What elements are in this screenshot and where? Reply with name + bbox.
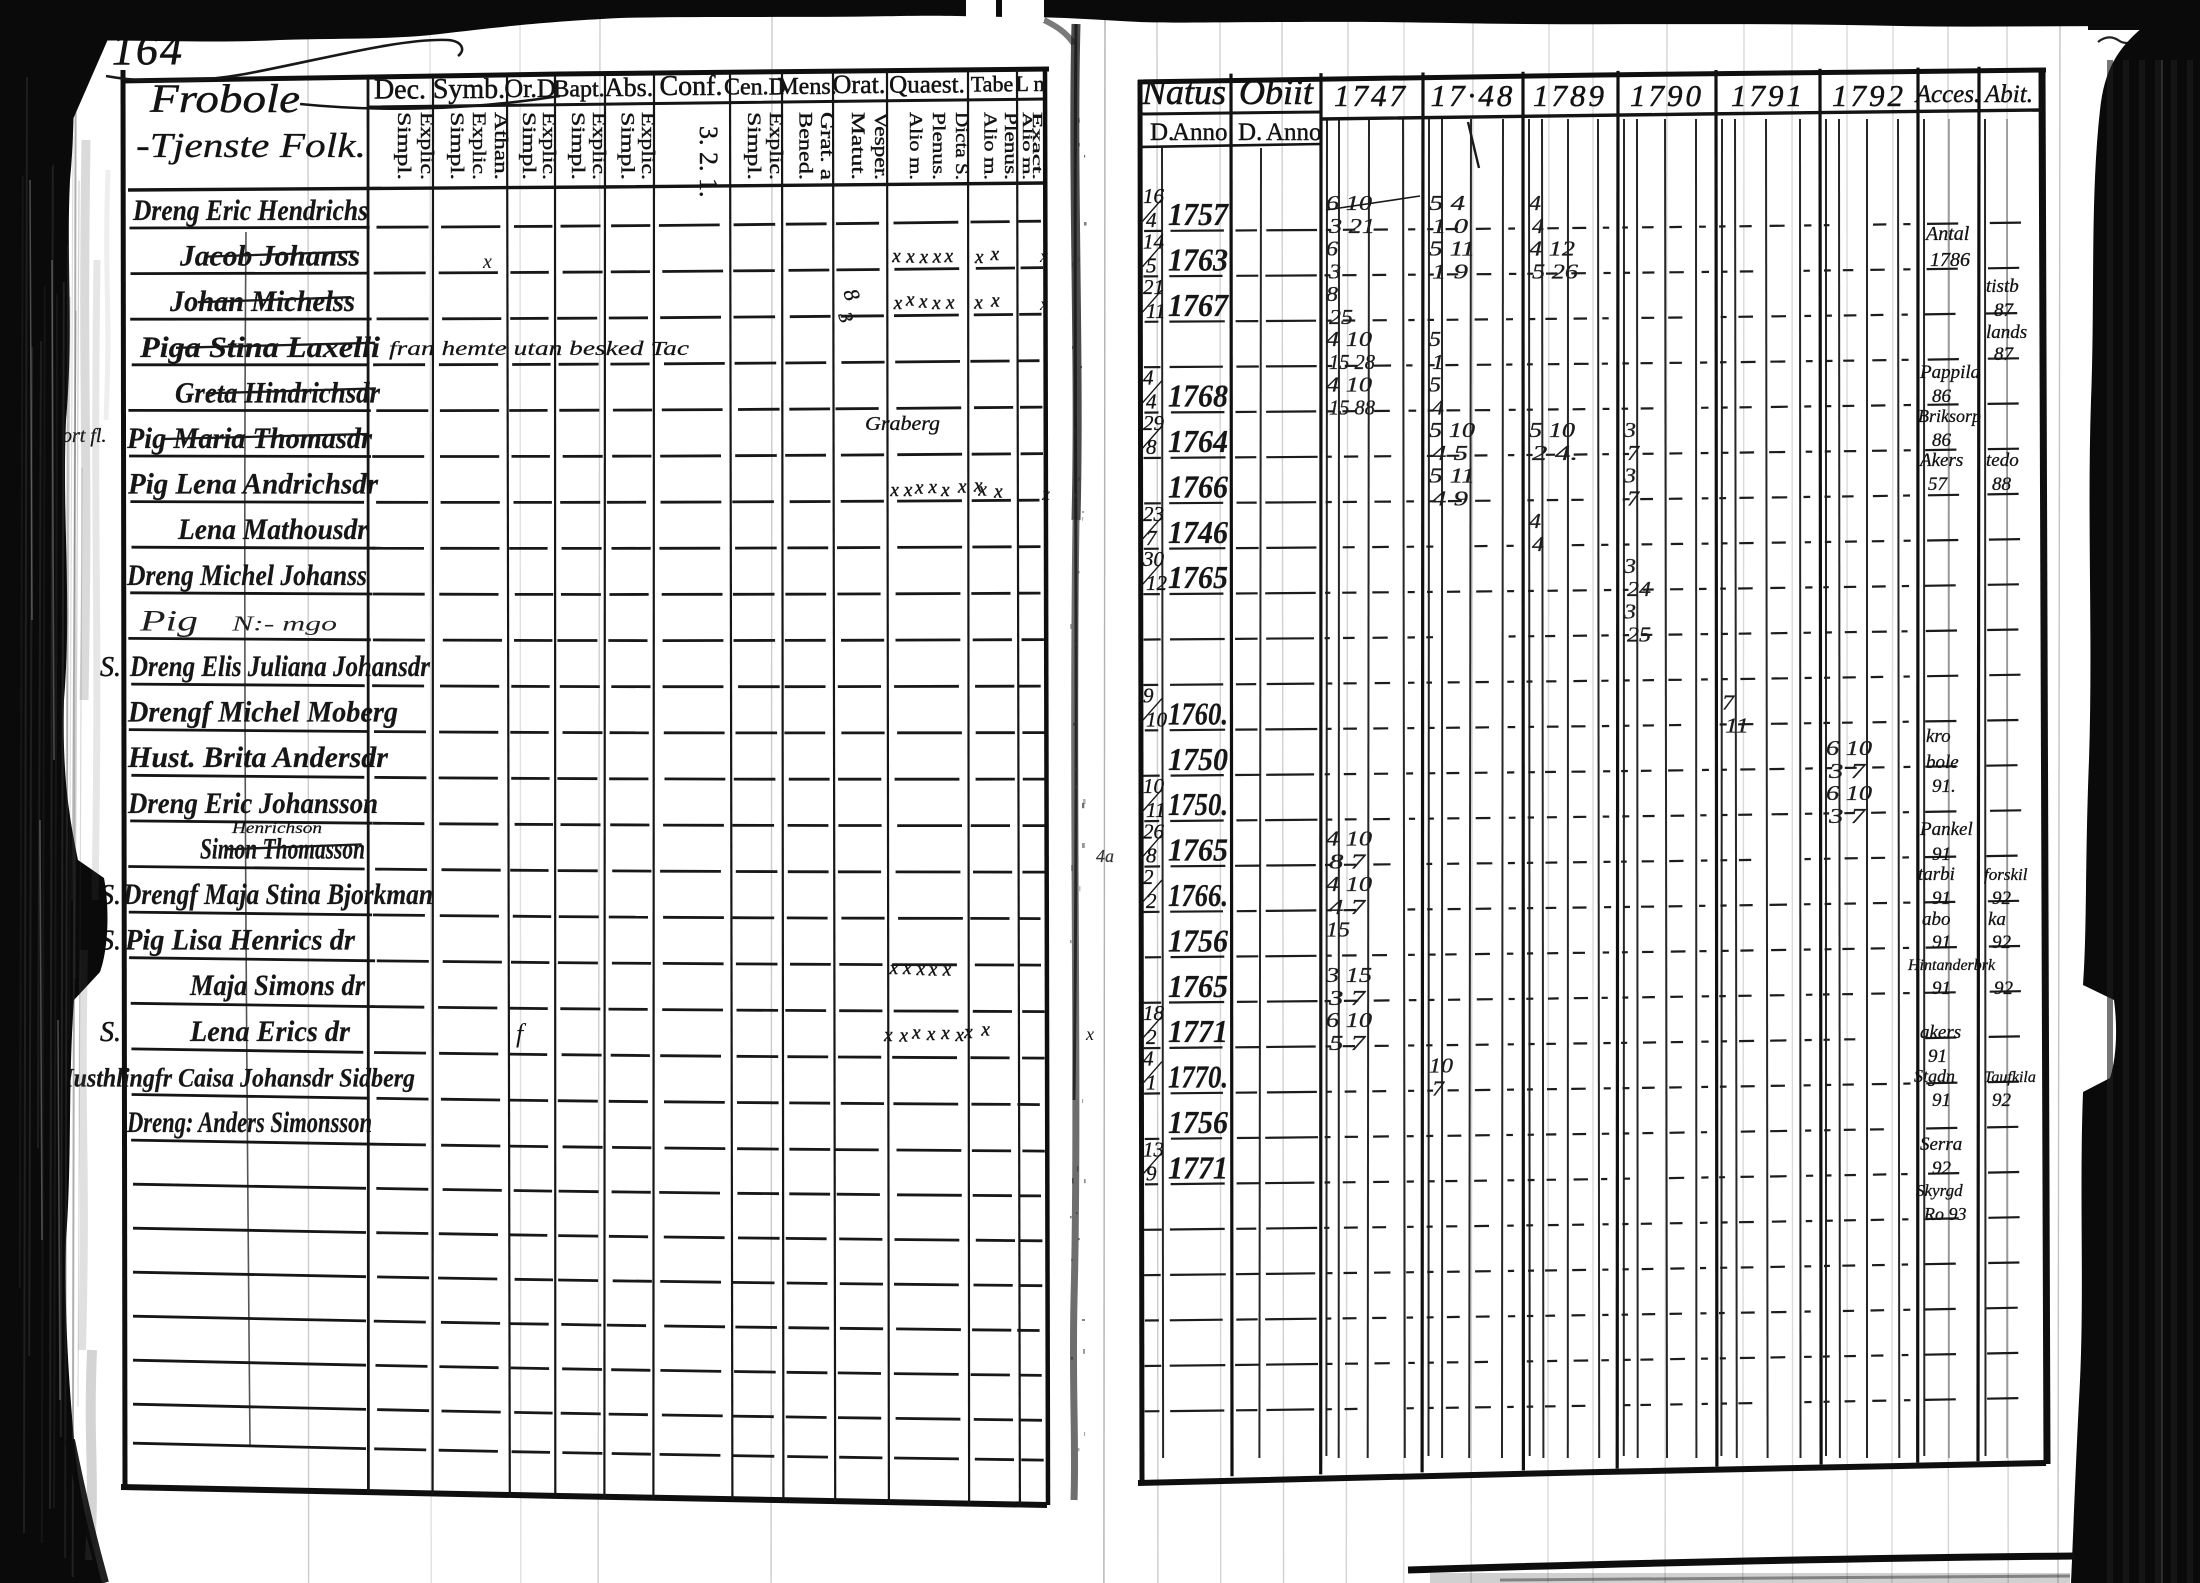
svg-text:bole: bole [1926, 752, 1959, 773]
svg-text:Tabe: Tabe [971, 72, 1013, 97]
svg-text:3: 3 [1623, 463, 1636, 487]
svg-text:Natus: Natus [1141, 72, 1226, 112]
svg-text:4 12: 4 12 [1529, 236, 1576, 260]
svg-text:Husthlingfr Caisa Johansdr Sid: Husthlingfr Caisa Johansdr Sidberg [54, 1063, 415, 1092]
svg-text:1766.: 1766. [1168, 877, 1228, 913]
svg-text:L n: L n [1015, 71, 1044, 96]
svg-text:92: 92 [1992, 888, 2012, 909]
svg-text:1756: 1756 [1168, 922, 1228, 958]
svg-text:x: x [990, 291, 1000, 312]
svg-text:kro: kro [1926, 726, 1951, 747]
svg-text:Explic.: Explic. [588, 112, 609, 180]
svg-text:91: 91 [1928, 1046, 1947, 1067]
svg-text:5 11: 5 11 [1429, 463, 1475, 487]
svg-text:Drengf Maja Stina Bjorkman: Drengf Maja Stina Bjorkman [122, 878, 433, 911]
svg-text:87: 87 [1994, 300, 2015, 321]
svg-text:x: x [883, 1025, 893, 1046]
svg-text:Dicta S.: Dicta S. [952, 112, 972, 180]
svg-text:Pankel: Pankel [1919, 819, 1973, 840]
svg-text:1792: 1792 [1832, 78, 1906, 113]
svg-text:x: x [1041, 484, 1050, 504]
svg-text:Pig Lisa Henrics dr: Pig Lisa Henrics dr [124, 924, 355, 957]
svg-text:86: 86 [1932, 386, 1952, 407]
svg-text:5: 5 [1429, 327, 1441, 351]
svg-text:Dreng Eric Hendrichs: Dreng Eric Hendrichs [132, 194, 368, 227]
svg-text:Hust. Brita Andersdr: Hust. Brita Andersdr [127, 741, 388, 774]
svg-text:1790: 1790 [1630, 78, 1704, 113]
svg-text:91: 91 [1932, 844, 1951, 865]
svg-text:8: 8 [1326, 282, 1339, 306]
svg-text:92: 92 [1992, 932, 2012, 953]
svg-text:N:- mgo: N:- mgo [230, 611, 337, 635]
svg-text:4 10: 4 10 [1326, 327, 1373, 351]
svg-text:3: 3 [1623, 554, 1636, 578]
svg-text:akers: akers [1920, 1022, 1961, 1043]
svg-text:x: x [973, 292, 983, 313]
svg-text:abo: abo [1922, 909, 1951, 930]
svg-text:Matut.: Matut. [847, 112, 868, 180]
svg-text:1764: 1764 [1168, 423, 1228, 459]
svg-text:6: 6 [1326, 236, 1339, 260]
svg-text:86: 86 [1932, 430, 1952, 451]
svg-text:x: x [932, 247, 942, 268]
svg-text:29: 29 [1143, 411, 1165, 435]
svg-text:5 26: 5 26 [1532, 259, 1579, 283]
svg-text:Acces.: Acces. [1914, 81, 1981, 108]
svg-text:1760.: 1760. [1168, 695, 1228, 731]
svg-text:3 21: 3 21 [1328, 214, 1375, 238]
svg-text:x: x [902, 958, 912, 979]
svg-text:Explic.: Explic. [637, 112, 658, 180]
svg-text:Explic.: Explic. [538, 112, 559, 180]
svg-text:Plenus.: Plenus. [1001, 112, 1021, 180]
svg-text:15 28: 15 28 [1329, 350, 1375, 374]
svg-text:1789: 1789 [1533, 78, 1607, 113]
svg-text:x: x [905, 290, 915, 311]
svg-text:Taufkila: Taufkila [1984, 1069, 2036, 1086]
svg-text:4: 4 [1532, 532, 1545, 556]
svg-text:12: 12 [1146, 571, 1168, 595]
svg-text:Symb.: Symb. [433, 74, 505, 105]
svg-text:Dec.: Dec. [374, 75, 426, 106]
svg-text:x: x [944, 246, 954, 267]
svg-text:x: x [980, 1020, 990, 1041]
svg-text:Obiit: Obiit [1239, 72, 1314, 112]
svg-text:x: x [914, 477, 924, 498]
svg-text:-Tjenste Folk.: -Tjenste Folk. [136, 126, 366, 165]
svg-text:57: 57 [1928, 474, 1949, 495]
svg-text:Serra: Serra [1920, 1134, 1962, 1155]
svg-text:11: 11 [1146, 299, 1165, 323]
svg-text:Ro 93: Ro 93 [1923, 1204, 1967, 1224]
svg-text:Dreng: Anders Simonsson: Dreng: Anders Simonsson [126, 1106, 372, 1139]
svg-text:5 10: 5 10 [1529, 418, 1576, 442]
svg-text:92: 92 [1994, 978, 2014, 999]
svg-text:x: x [974, 247, 984, 268]
svg-text:4 7: 4 7 [1329, 895, 1367, 919]
svg-text:Henrichson: Henrichson [231, 820, 322, 837]
svg-text:Grat. a: Grat. a [816, 112, 837, 181]
svg-text:4 9: 4 9 [1432, 486, 1469, 510]
svg-text:9: 9 [1143, 683, 1154, 707]
svg-text:25: 25 [1627, 623, 1651, 647]
svg-text:Quaest.: Quaest. [889, 71, 965, 98]
svg-text:x: x [940, 480, 950, 501]
svg-text:4: 4 [1143, 1047, 1154, 1071]
svg-text:x: x [918, 291, 928, 312]
svg-text:x: x [955, 1025, 965, 1046]
svg-text:4: 4 [1432, 396, 1445, 420]
svg-text:8 7: 8 7 [1329, 850, 1367, 874]
svg-text:Pappila: Pappila [1919, 362, 1980, 383]
svg-text:2: 2 [1143, 865, 1154, 889]
svg-text:x: x [928, 960, 938, 981]
svg-text:30: 30 [1142, 547, 1165, 571]
svg-text:Alio m.: Alio m. [1019, 112, 1034, 180]
svg-text:16: 16 [1143, 184, 1165, 208]
svg-text:92: 92 [1992, 1090, 2012, 1111]
svg-text:4 10: 4 10 [1326, 373, 1373, 397]
svg-text:Anno: Anno [1266, 119, 1322, 146]
svg-text:5 4: 5 4 [1429, 191, 1466, 215]
svg-text:x: x [905, 246, 915, 267]
svg-text:x: x [931, 293, 941, 314]
svg-text:Akers: Akers [1918, 450, 1963, 471]
svg-text:S.: S. [100, 1017, 121, 1048]
svg-text:14: 14 [1143, 229, 1165, 253]
svg-text:Athan.: Athan. [490, 112, 511, 180]
svg-text:10: 10 [1429, 1054, 1454, 1078]
svg-text:92: 92 [1932, 1158, 1952, 1179]
svg-text:Stgdn: Stgdn [1914, 1066, 1955, 1086]
svg-text:3 7: 3 7 [1828, 804, 1867, 828]
svg-text:1765: 1765 [1168, 832, 1228, 868]
svg-text:5 7: 5 7 [1329, 1031, 1367, 1055]
svg-text:Dreng Eric Johansson: Dreng Eric Johansson [127, 787, 378, 820]
svg-text:tistb: tistb [1986, 276, 2019, 297]
svg-text:Simpl.: Simpl. [393, 112, 414, 180]
svg-text:Simpl.: Simpl. [518, 112, 539, 180]
svg-text:S.: S. [100, 652, 121, 683]
svg-text:x: x [990, 244, 1000, 265]
svg-text:Hintanderbrk: Hintanderbrk [1907, 957, 1996, 974]
svg-text:x: x [1039, 294, 1048, 314]
svg-text:1770.: 1770. [1168, 1059, 1228, 1095]
svg-text:1765: 1765 [1168, 968, 1228, 1004]
svg-text:x: x [945, 293, 955, 314]
svg-text:Lena Erics dr: Lena Erics dr [189, 1015, 350, 1048]
svg-text:Alio m.: Alio m. [981, 112, 1001, 180]
svg-text:Jacob Johanss: Jacob Johanss [179, 240, 360, 273]
svg-text:x: x [928, 477, 938, 498]
svg-text:1768: 1768 [1168, 378, 1228, 414]
svg-text:1756: 1756 [1168, 1104, 1228, 1140]
svg-text:6 10: 6 10 [1826, 736, 1873, 760]
svg-text:Explic.: Explic. [416, 112, 437, 180]
svg-text:Alio m.: Alio m. [906, 112, 926, 180]
svg-text:1765: 1765 [1168, 559, 1228, 595]
svg-text:91.: 91. [1932, 776, 1956, 797]
svg-text:ka: ka [1988, 909, 2006, 930]
svg-text:fran hemte utan besked Tac: fran hemte utan besked Tac [389, 338, 689, 360]
svg-text:25: 25 [1329, 305, 1353, 329]
svg-text:21: 21 [1143, 275, 1164, 299]
svg-text:7: 7 [1627, 441, 1641, 465]
svg-text:1786: 1786 [1930, 249, 1970, 271]
svg-text:6 10: 6 10 [1326, 191, 1373, 215]
svg-text:Orat.: Orat. [833, 70, 886, 99]
svg-text:x: x [919, 247, 929, 268]
svg-text:11: 11 [1146, 798, 1165, 822]
svg-text:Pig Maria Thomasdr: Pig Maria Thomasdr [126, 422, 372, 455]
svg-text:tarbi: tarbi [1918, 864, 1955, 885]
svg-text:13: 13 [1143, 1137, 1164, 1161]
svg-text:4 5: 4 5 [1432, 441, 1468, 465]
svg-text:Bapt.: Bapt. [553, 77, 604, 103]
svg-text:Simpl.: Simpl. [567, 112, 588, 180]
svg-text:1771: 1771 [1168, 1149, 1228, 1185]
svg-text:D.: D. [1238, 119, 1262, 146]
svg-text:1766: 1766 [1168, 468, 1228, 504]
svg-text:1 9: 1 9 [1432, 259, 1469, 283]
svg-text:Simpl.: Simpl. [446, 112, 467, 180]
svg-text:Plenus.: Plenus. [929, 112, 949, 180]
svg-text:1763: 1763 [1168, 241, 1228, 277]
svg-text:1750.: 1750. [1168, 786, 1228, 822]
svg-text:7: 7 [1722, 690, 1736, 714]
svg-text:Explic.: Explic. [765, 112, 786, 180]
svg-text:6 10: 6 10 [1826, 781, 1873, 805]
svg-text:87: 87 [1994, 344, 2015, 365]
svg-text:23: 23 [1143, 502, 1164, 526]
svg-text:3: 3 [1328, 259, 1341, 283]
svg-text:forskil: forskil [1984, 865, 2028, 884]
svg-text:Abit.: Abit. [1983, 81, 2033, 108]
svg-text:Dreng Elis Juliana Johansdr: Dreng Elis Juliana Johansdr [129, 650, 430, 683]
svg-text:lands: lands [1986, 322, 2027, 343]
svg-text:x: x [893, 293, 903, 314]
svg-text:4: 4 [1529, 191, 1542, 215]
svg-text:1746: 1746 [1168, 514, 1228, 550]
svg-text:91: 91 [1932, 888, 1951, 909]
svg-text:1750: 1750 [1168, 741, 1228, 777]
svg-text:Mens.: Mens. [777, 74, 836, 100]
svg-text:tedo: tedo [1986, 450, 2019, 471]
svg-text:1747: 1747 [1334, 78, 1408, 113]
svg-text:x: x [993, 482, 1003, 503]
svg-text:1757: 1757 [1168, 196, 1230, 232]
svg-text:Anno: Anno [1172, 119, 1228, 146]
svg-text:91: 91 [1932, 1090, 1951, 1111]
svg-text:Explic.: Explic. [468, 112, 489, 180]
svg-text:3 7: 3 7 [1828, 759, 1867, 783]
svg-text:3. 2. 1.: 3. 2. 1. [694, 126, 723, 198]
svg-text:Simon Thomasson: Simon Thomasson [200, 832, 365, 865]
svg-text:x: x [911, 1022, 921, 1043]
svg-text:x: x [916, 959, 926, 980]
svg-text:88: 88 [1992, 474, 2012, 495]
svg-text:5 11: 5 11 [1429, 236, 1475, 260]
svg-text:1 0: 1 0 [1432, 214, 1469, 238]
svg-text:Briksorp: Briksorp [1918, 406, 1981, 426]
svg-text:Simpl.: Simpl. [617, 112, 638, 180]
svg-text:Piga Stina Laxelli: Piga Stina Laxelli [139, 331, 381, 364]
svg-text:1: 1 [1432, 350, 1444, 374]
svg-text:Vesper.: Vesper. [870, 112, 891, 180]
svg-text:18: 18 [1143, 1001, 1165, 1025]
svg-text:x: x [891, 246, 901, 267]
svg-text:91: 91 [1932, 932, 1951, 953]
svg-text:4a: 4a [1096, 846, 1114, 866]
svg-text:Drengf Michel Moberg: Drengf Michel Moberg [127, 696, 398, 729]
svg-text:x: x [940, 1023, 950, 1044]
svg-text:Johan Michelss: Johan Michelss [169, 285, 355, 318]
svg-text:15 88: 15 88 [1329, 396, 1375, 420]
svg-text:7: 7 [1146, 526, 1158, 550]
svg-text:3 7: 3 7 [1328, 986, 1367, 1010]
svg-text:Skyrgd: Skyrgd [1916, 1181, 1963, 1200]
svg-text:7: 7 [1432, 1077, 1446, 1101]
svg-text:5: 5 [1429, 373, 1441, 397]
svg-text:7: 7 [1627, 486, 1641, 510]
svg-text:Frobole: Frobole [149, 76, 300, 121]
svg-text:x: x [1085, 1024, 1094, 1044]
svg-text:11: 11 [1725, 713, 1749, 737]
svg-text:Lena Mathousdr: Lena Mathousdr [177, 513, 368, 546]
svg-text:Bened.: Bened. [795, 112, 816, 180]
svg-text:x: x [889, 480, 899, 501]
svg-text:Dreng Michel Johanss: Dreng Michel Johanss [126, 559, 367, 592]
svg-text:x: x [977, 479, 987, 500]
svg-text:4: 4 [1532, 214, 1545, 238]
svg-text:Graberg: Graberg [865, 413, 940, 435]
svg-text:17·48: 17·48 [1431, 78, 1516, 113]
svg-text:x: x [942, 960, 952, 981]
svg-text:x: x [926, 1024, 936, 1045]
svg-text:1767: 1767 [1168, 287, 1230, 323]
svg-text:Pig: Pig [139, 604, 198, 637]
svg-text:5 10: 5 10 [1429, 418, 1476, 442]
svg-text:x: x [903, 480, 913, 501]
svg-text:Abs.: Abs. [605, 73, 653, 102]
svg-text:Antal: Antal [1924, 223, 1970, 245]
svg-text:26: 26 [1143, 820, 1165, 844]
svg-text:3: 3 [1623, 418, 1636, 442]
svg-text:x: x [957, 477, 967, 498]
svg-text:1771: 1771 [1168, 1013, 1228, 1049]
svg-text:D.: D. [1150, 119, 1174, 146]
svg-text:x: x [899, 1025, 909, 1046]
svg-text:Pig Lena Andrichsdr: Pig Lena Andrichsdr [127, 468, 378, 501]
svg-text:3: 3 [1623, 600, 1636, 624]
svg-text:x: x [889, 958, 899, 979]
svg-text:x: x [482, 251, 492, 273]
svg-text:x: x [963, 1022, 973, 1043]
svg-text:15: 15 [1326, 917, 1350, 941]
svg-text:x: x [1039, 246, 1048, 266]
svg-text:2 4.: 2 4. [1532, 441, 1578, 465]
svg-text:4: 4 [1143, 366, 1154, 390]
svg-text:4: 4 [1529, 509, 1542, 533]
svg-text:91: 91 [1932, 978, 1951, 999]
svg-text:6 10: 6 10 [1326, 1008, 1373, 1032]
svg-text:10: 10 [1143, 774, 1165, 798]
svg-text:3 15: 3 15 [1325, 963, 1372, 987]
svg-text:Maja Simons dr: Maja Simons dr [189, 969, 365, 1002]
svg-text:24: 24 [1627, 577, 1652, 601]
svg-text:10: 10 [1146, 707, 1168, 731]
svg-text:4 10: 4 10 [1326, 827, 1373, 851]
svg-text:Simpl.: Simpl. [743, 112, 764, 180]
svg-text:Conf.: Conf. [660, 71, 723, 102]
svg-text:1791: 1791 [1731, 78, 1805, 113]
svg-text:4 10: 4 10 [1326, 872, 1373, 896]
